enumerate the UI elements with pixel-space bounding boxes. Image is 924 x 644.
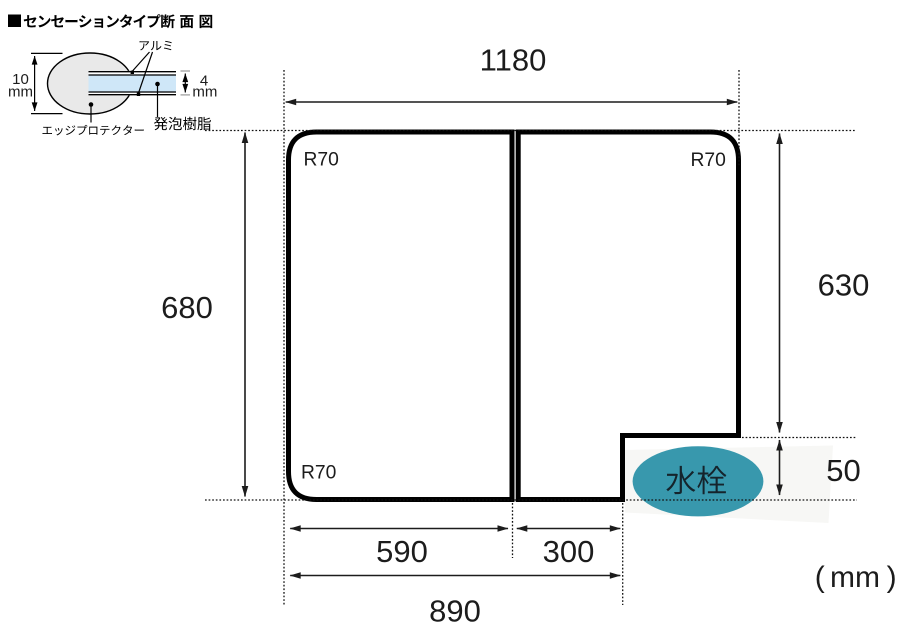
svg-text:mm: mm	[8, 84, 33, 101]
svg-text:590: 590	[376, 534, 428, 569]
svg-text:R70: R70	[304, 149, 339, 170]
svg-text:R70: R70	[691, 150, 726, 171]
svg-text:890: 890	[429, 594, 481, 629]
svg-text:680: 680	[161, 290, 213, 325]
svg-text:mm: mm	[830, 561, 880, 594]
svg-text:): )	[887, 561, 897, 594]
svg-text:mm: mm	[192, 84, 217, 101]
svg-text:(: (	[815, 561, 825, 594]
svg-text:R70: R70	[301, 463, 336, 484]
svg-text:300: 300	[543, 534, 595, 569]
svg-text:50: 50	[826, 453, 860, 488]
svg-text:1180: 1180	[480, 43, 547, 78]
svg-text:630: 630	[818, 268, 870, 303]
